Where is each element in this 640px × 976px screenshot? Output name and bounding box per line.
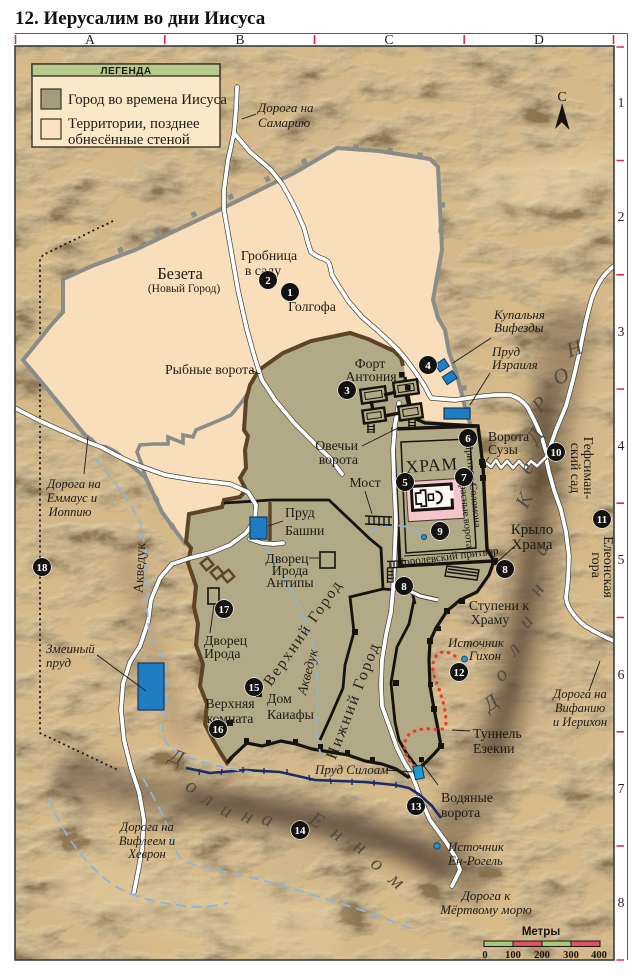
svg-text:Вифанию: Вифанию (555, 701, 605, 715)
svg-text:Каиафы: Каиафы (267, 707, 314, 722)
svg-text:Дорога к: Дорога к (460, 888, 512, 903)
svg-text:пруд: пруд (46, 655, 72, 670)
svg-text:Водяные: Водяные (441, 790, 493, 805)
svg-text:Дорога на: Дорога на (552, 687, 606, 701)
svg-text:Антипы: Антипы (266, 575, 313, 590)
svg-text:8: 8 (618, 895, 625, 910)
svg-text:ХРАМ: ХРАМ (405, 453, 459, 477)
svg-text:С: С (557, 90, 566, 105)
svg-text:Вифлеем и: Вифлеем и (119, 834, 175, 848)
svg-text:9: 9 (437, 526, 443, 538)
svg-text:7: 7 (618, 781, 625, 796)
svg-text:18: 18 (37, 562, 49, 574)
svg-text:Дорога на: Дорога на (46, 477, 100, 491)
svg-text:ворота: ворота (441, 805, 480, 820)
svg-text:Гробница: Гробница (241, 248, 297, 263)
svg-text:8: 8 (502, 564, 508, 576)
svg-text:Верхняя: Верхняя (205, 696, 255, 711)
svg-text:Голгофа: Голгофа (288, 299, 336, 314)
svg-text:Дорога на: Дорога на (119, 820, 173, 834)
svg-text:Змеиный: Змеиный (46, 641, 95, 656)
svg-text:Город во времена Иисуса: Город во времена Иисуса (68, 92, 227, 108)
svg-text:Храму: Храму (471, 612, 510, 627)
svg-text:Рыбные ворота: Рыбные ворота (165, 362, 254, 377)
svg-text:обнесённые стеной: обнесённые стеной (68, 132, 190, 148)
svg-text:5: 5 (402, 477, 408, 489)
svg-text:гора: гора (588, 552, 603, 578)
svg-text:12: 12 (454, 667, 466, 679)
svg-text:11: 11 (597, 514, 607, 526)
svg-text:17: 17 (219, 604, 231, 616)
svg-text:C: C (384, 32, 393, 47)
svg-text:16: 16 (213, 724, 225, 736)
svg-text:15: 15 (249, 682, 261, 694)
svg-text:Пруд: Пруд (285, 505, 315, 520)
svg-text:ский сад: ский сад (568, 443, 583, 493)
svg-text:Езекии: Езекии (473, 741, 515, 756)
svg-text:Туннель: Туннель (473, 726, 522, 741)
svg-text:1: 1 (618, 95, 625, 110)
svg-text:6: 6 (465, 433, 471, 445)
svg-text:3: 3 (344, 385, 350, 397)
svg-text:Акведук: Акведук (132, 542, 150, 593)
svg-text:4: 4 (618, 438, 625, 453)
svg-text:Вифезды: Вифезды (494, 320, 544, 335)
svg-text:Крыло: Крыло (511, 522, 554, 538)
svg-text:Ирода: Ирода (204, 646, 241, 661)
svg-text:Мост: Мост (349, 475, 380, 490)
svg-text:Безета: Безета (157, 264, 203, 283)
svg-text:Израиля: Израиля (491, 357, 538, 372)
svg-text:(Новый Город): (Новый Город) (148, 283, 220, 295)
svg-text:14: 14 (295, 825, 307, 837)
svg-text:ворота: ворота (319, 452, 358, 467)
svg-text:3: 3 (618, 324, 625, 339)
svg-text:Иоппию: Иоппию (48, 505, 92, 519)
svg-text:Сузы: Сузы (488, 442, 518, 457)
svg-text:Самарию: Самарию (258, 115, 310, 130)
svg-text:D: D (534, 32, 544, 47)
svg-text:A: A (85, 32, 95, 47)
svg-text:1: 1 (287, 287, 293, 299)
svg-text:Дорога на: Дорога на (256, 100, 314, 115)
svg-text:Овечьи: Овечьи (315, 438, 358, 453)
svg-text:6: 6 (618, 667, 625, 682)
svg-text:Пруд Силоам: Пруд Силоам (314, 762, 389, 777)
svg-text:Башни: Башни (285, 523, 325, 538)
svg-text:Метры: Метры (522, 926, 560, 938)
svg-text:B: B (235, 32, 244, 47)
svg-text:7: 7 (461, 472, 467, 484)
svg-text:Источник: Источник (447, 839, 505, 854)
svg-text:Мёртвому морю: Мёртвому морю (439, 902, 532, 917)
svg-text:12. Иерусалим во дни Иисуса: 12. Иерусалим во дни Иисуса (15, 8, 266, 29)
svg-text:2: 2 (265, 275, 271, 287)
svg-text:Территории, позднее: Территории, позднее (68, 116, 200, 132)
svg-text:13: 13 (411, 801, 423, 813)
svg-text:5: 5 (618, 552, 625, 567)
svg-text:8: 8 (401, 581, 407, 593)
svg-text:Дом: Дом (267, 691, 292, 706)
svg-text:ЛЕГЕНДА: ЛЕГЕНДА (100, 66, 151, 77)
svg-text:Антония: Антония (345, 369, 397, 384)
svg-text:и Иерихон: и Иерихон (553, 715, 607, 729)
svg-text:10: 10 (551, 447, 563, 459)
svg-text:Ен-Рогель: Ен-Рогель (447, 853, 503, 868)
svg-text:2: 2 (618, 209, 625, 224)
svg-text:Еммаус и: Еммаус и (46, 491, 97, 505)
svg-text:Хеврон: Хеврон (127, 847, 165, 861)
svg-text:4: 4 (425, 360, 431, 372)
svg-text:Гихон: Гихон (468, 648, 501, 663)
